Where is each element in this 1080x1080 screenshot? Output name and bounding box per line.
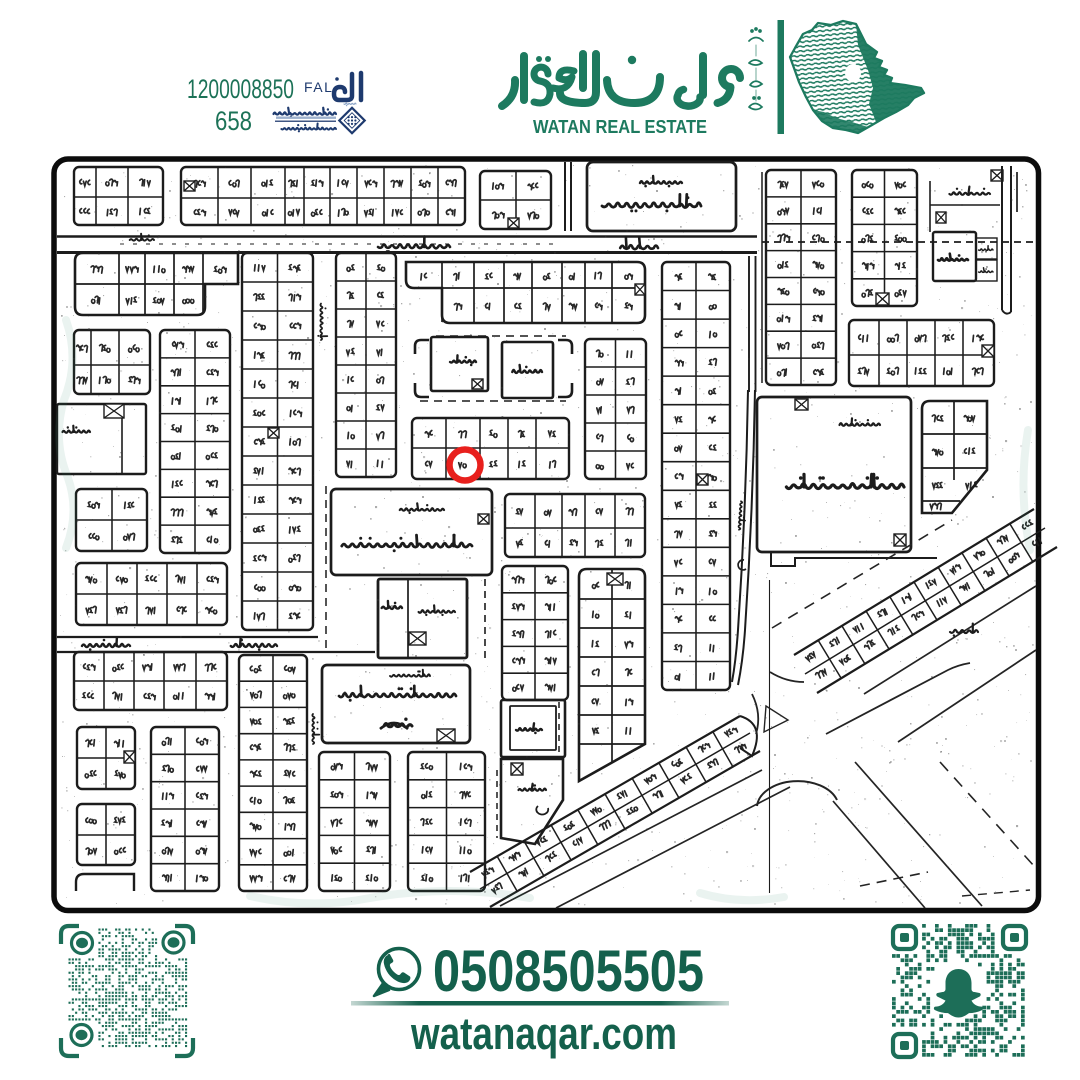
svg-text:0508505505: 0508505505 <box>433 939 704 1004</box>
svg-text:658: 658 <box>215 106 252 136</box>
svg-text:FAL: FAL <box>304 79 333 95</box>
svg-text:1200008850: 1200008850 <box>187 74 294 104</box>
svg-text:WATAN REAL ESTATE: WATAN REAL ESTATE <box>533 116 707 137</box>
svg-text:watanaqar.com: watanaqar.com <box>410 1008 677 1059</box>
